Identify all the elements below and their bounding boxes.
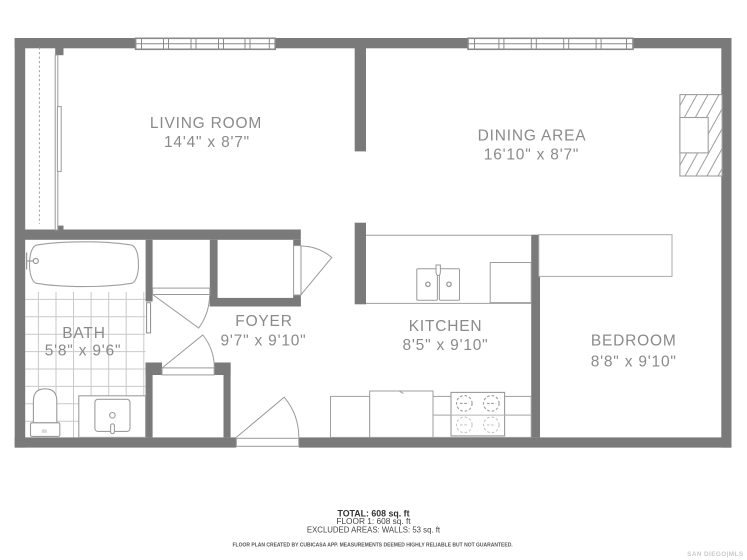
- svg-text:EXCLUDED AREAS: WALLS: 53 sq.: EXCLUDED AREAS: WALLS: 53 sq. ft: [307, 526, 441, 535]
- svg-text:SAN DIEGO|MLS: SAN DIEGO|MLS: [687, 551, 744, 558]
- svg-text:LIVING ROOM: LIVING ROOM: [150, 115, 262, 132]
- svg-text:BEDROOM: BEDROOM: [591, 333, 677, 350]
- svg-text:5'8" x 9'6": 5'8" x 9'6": [45, 343, 122, 360]
- svg-text:FLOOR PLAN CREATED BY CUBICASA: FLOOR PLAN CREATED BY CUBICASA APP. MEAS…: [232, 543, 513, 549]
- svg-text:KITCHEN: KITCHEN: [409, 318, 483, 335]
- svg-text:BATH: BATH: [62, 325, 105, 342]
- svg-text:16'10" x 8'7": 16'10" x 8'7": [484, 147, 579, 164]
- svg-text:14'4" x 8'7": 14'4" x 8'7": [164, 134, 250, 151]
- svg-text:8'8" x 9'10": 8'8" x 9'10": [591, 354, 677, 371]
- svg-text:DINING AREA: DINING AREA: [478, 128, 587, 145]
- svg-text:FOYER: FOYER: [235, 313, 292, 330]
- svg-text:9'7" x 9'10": 9'7" x 9'10": [221, 333, 307, 350]
- svg-text:8'5" x 9'10": 8'5" x 9'10": [403, 337, 489, 354]
